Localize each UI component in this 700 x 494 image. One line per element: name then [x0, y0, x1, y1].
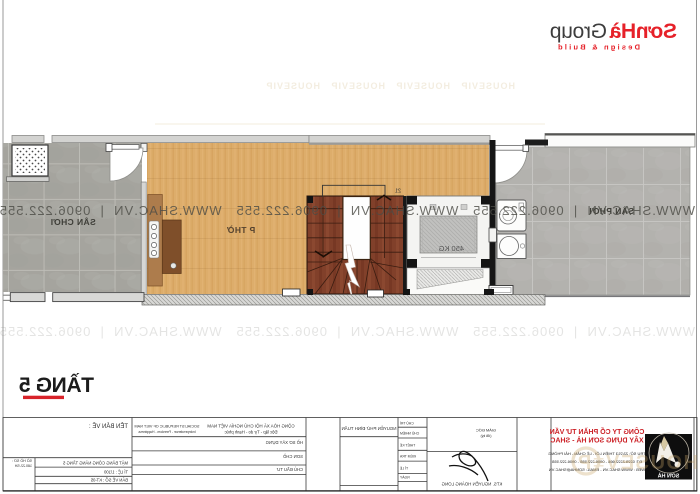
- svg-text:BẢN VẼ SỐ : KT-05: BẢN VẼ SỐ : KT-05: [90, 478, 128, 483]
- svg-text:180.22-SH: 180.22-SH: [14, 464, 32, 468]
- svg-text:SOCIALIST REPUBLIC OF VIET NAM: SOCIALIST REPUBLIC OF VIET NAM: [134, 425, 199, 429]
- svg-text:TÊN BẢN VẼ :: TÊN BẢN VẼ :: [89, 422, 128, 430]
- svg-text:WWW.SHAC.VN | 0906.222.555: WWW.SHAC.VN | 0906.222.555 WWW.SHAC.VN |…: [0, 203, 695, 218]
- svg-text:CHỦ TRÌ: CHỦ TRÌ: [400, 421, 414, 426]
- svg-text:KTS. NGUYỄN HOÀNG LONG: KTS. NGUYỄN HOÀNG LONG: [441, 482, 502, 487]
- svg-text:SơnHà: SơnHà: [609, 20, 677, 43]
- svg-text:P THỜ: P THỜ: [226, 224, 255, 235]
- svg-text:NGUYỄN PHỨ ĐÌNH TUẤN: NGUYỄN PHỨ ĐÌNH TUẤN: [342, 426, 397, 431]
- svg-text:NGÀY: NGÀY: [399, 476, 409, 480]
- svg-text:SỒ HỒ SƠ :: SỒ HỒ SƠ :: [12, 458, 32, 463]
- svg-text:Independence - Freedom - Happi: Independence - Freedom - Happiness: [138, 430, 195, 434]
- svg-text:MẶT BẰNG CÔNG NĂNG TẦNG 5: MẶT BẰNG CÔNG NĂNG TẦNG 5: [62, 461, 128, 466]
- svg-text:CHỦ NHIỆM: CHỦ NHIỆM: [400, 431, 419, 436]
- svg-text:KIỂM TRA: KIỂM TRA: [399, 454, 416, 459]
- svg-text:TỈ LỆ: TỈ LỆ: [399, 466, 408, 471]
- svg-text:CỘNG HÒA XÃ HỘI CHỦ NGHĨA VIỆT: CỘNG HÒA XÃ HỘI CHỦ NGHĨA VIỆT NAM: [207, 424, 295, 429]
- svg-text:HỒ SƠ XÂY DỰNG: HỒ SƠ XÂY DỰNG: [266, 440, 303, 445]
- svg-text:HOUSEVIP: HOUSEVIP: [460, 81, 515, 91]
- svg-text:Design & Build: Design & Build: [556, 43, 640, 52]
- svg-text:HOUSEVIP: HOUSEVIP: [395, 81, 450, 91]
- svg-text:SƠN CHỒ: SƠN CHỒ: [282, 454, 303, 459]
- svg-text:TẦNG 5: TẦNG 5: [19, 374, 94, 397]
- svg-text:(đã ký): (đã ký): [481, 434, 492, 438]
- svg-text:THIẾT KẾ: THIẾT KẾ: [399, 443, 415, 448]
- svg-text:CHỦ ĐẦU TƯ: CHỦ ĐẦU TƯ: [276, 467, 303, 472]
- svg-text:WWW.SHAC.VN | 0906.222.555: WWW.SHAC.VN | 0906.222.555 WWW.SHAC.VN |…: [0, 324, 695, 339]
- svg-text:Group: Group: [550, 20, 607, 43]
- svg-text:Độc lập - Tự do - Hạnh phúc: Độc lập - Tự do - Hạnh phúc: [224, 430, 277, 435]
- svg-text:GIÁM ĐỐC: GIÁM ĐỐC: [476, 428, 496, 433]
- svg-text:TỈ LỆ : 1/100: TỈ LỆ : 1/100: [103, 470, 128, 475]
- svg-text:HOUSEVIP: HOUSEVIP: [265, 81, 320, 91]
- svg-text:21: 21: [395, 189, 401, 195]
- svg-text:HOUSEV≡P: HOUSEV≡P: [577, 452, 698, 474]
- svg-text:450 KG: 450 KG: [438, 244, 464, 253]
- svg-text:XÂY DỰNG SƠN HÀ - SHAC: XÂY DỰNG SƠN HÀ - SHAC: [550, 436, 643, 445]
- svg-text:HOUSEVIP: HOUSEVIP: [330, 81, 385, 91]
